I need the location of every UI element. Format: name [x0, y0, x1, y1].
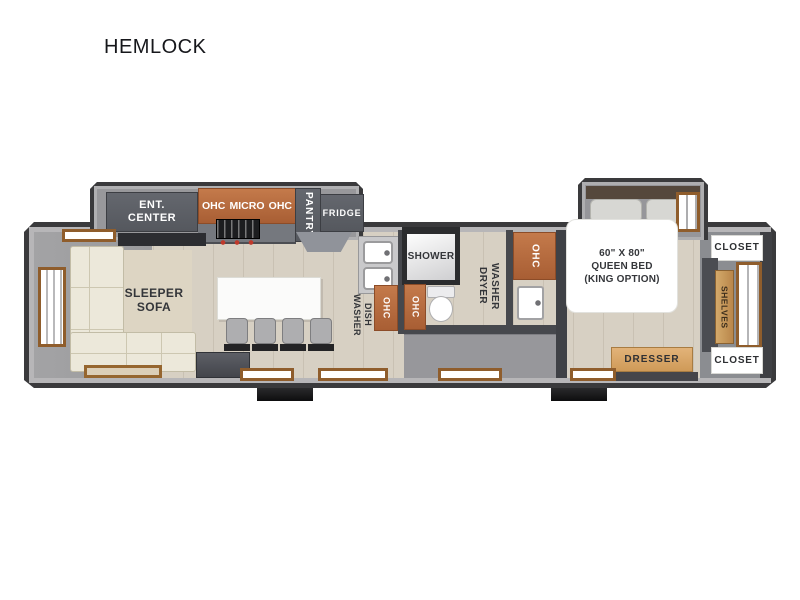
bar-stool [226, 318, 248, 344]
bottom-wall-window [438, 368, 502, 381]
kitchen-island [217, 277, 321, 320]
kitchen-sink-bowl [363, 241, 393, 264]
bar-stool [282, 318, 304, 344]
bar-stool [310, 318, 332, 344]
dresser-rug [602, 372, 698, 381]
queen-bed: 60" X 80" QUEEN BED (KING OPTION) [566, 219, 678, 313]
fridge: FRIDGE [320, 194, 364, 232]
washer-dryer-label: WASHER DRYER [472, 238, 504, 334]
bar-stool [254, 318, 276, 344]
entry-step [551, 388, 607, 401]
burner-knobs [218, 240, 258, 245]
shelves-unit: SHELVES [715, 270, 734, 344]
ohc-right-label: OHC [269, 200, 292, 212]
tv-console [118, 233, 206, 246]
stove-cooktop [216, 219, 260, 239]
dresser: DRESSER [611, 347, 693, 372]
lounge-rug [84, 365, 162, 378]
ohc-left-label: OHC [202, 200, 225, 212]
overhead-cabinet-kitchen: OHC [374, 285, 398, 331]
micro-label: MICRO [230, 200, 265, 212]
bathroom-sink [517, 286, 544, 320]
overhead-cabinet-vanity: OHC [513, 232, 556, 280]
right-wall-window [736, 262, 762, 348]
washer-closet-wall [506, 230, 513, 334]
left-wall-window [38, 267, 66, 347]
fridge-label: FRIDGE [323, 208, 362, 218]
overhead-cabinet-bath: OHC [404, 284, 426, 330]
bedroom-slideout-window [676, 192, 700, 232]
closet-top: CLOSET [711, 235, 763, 261]
closet-bottom: CLOSET [711, 347, 763, 374]
floorplan-page: HEMLOCK ENT. CENTER OHC MICRO OHC PANTRY… [0, 0, 800, 600]
page-title: HEMLOCK [104, 36, 206, 59]
dishwasher-label: DISH WASHER [350, 286, 374, 344]
sleeper-sofa-label: SLEEPER SOFA [112, 286, 196, 316]
shower-label: SHOWER [408, 251, 455, 263]
front-wall-window [62, 229, 116, 242]
bottom-wall-window [570, 368, 616, 381]
bottom-wall-window [318, 368, 388, 381]
entry-step [257, 388, 313, 401]
bottom-wall-window [240, 368, 294, 381]
entertainment-center-label: ENT. CENTER [128, 199, 176, 224]
toilet-bowl [429, 296, 453, 322]
pantry-label: PANTRY [302, 192, 314, 238]
toilet [427, 286, 455, 324]
entertainment-center: ENT. CENTER [106, 192, 198, 232]
bed-label: 60" X 80" QUEEN BED (KING OPTION) [584, 247, 659, 286]
shower-stall: SHOWER [402, 227, 460, 285]
